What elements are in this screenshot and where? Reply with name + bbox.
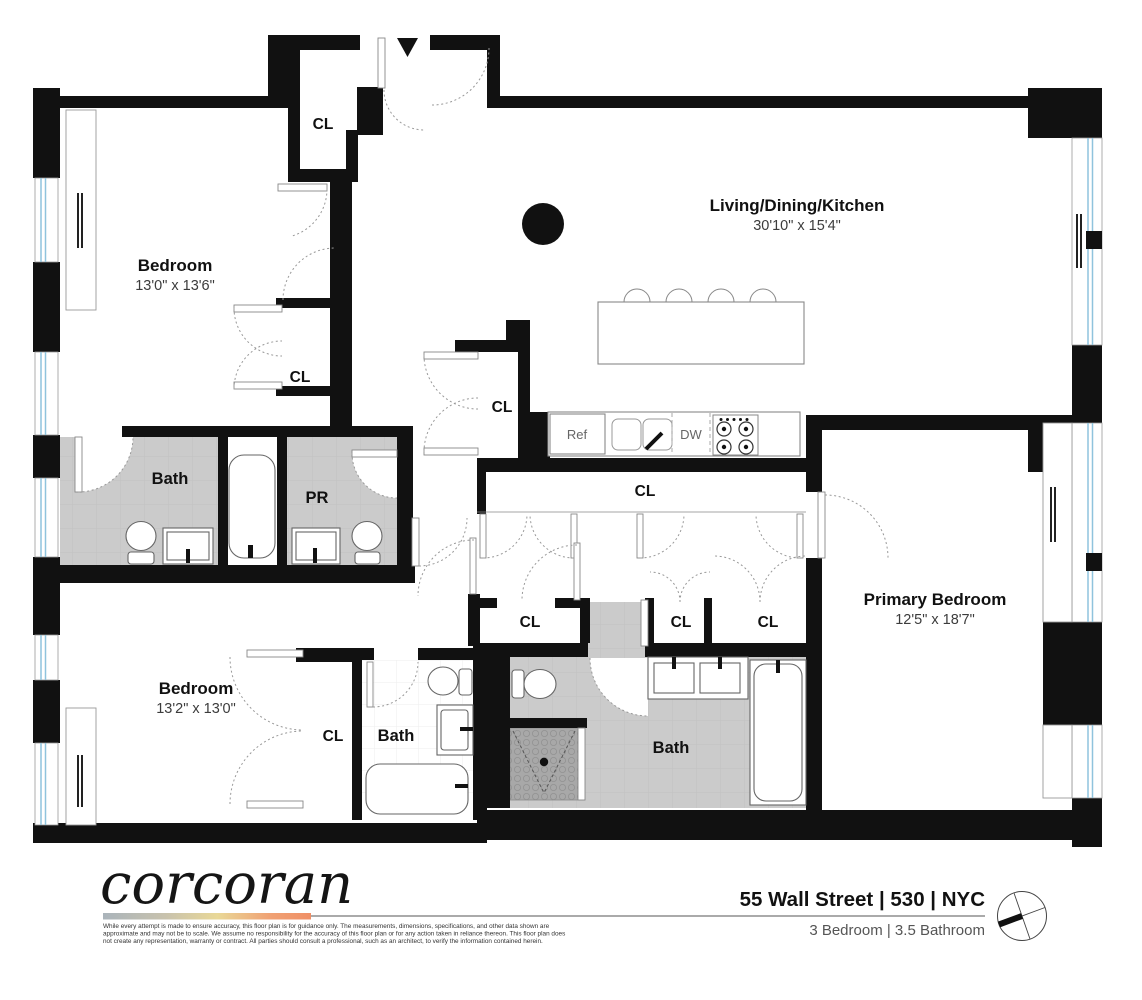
sink-icon [292, 528, 340, 564]
toilet-icon [126, 522, 156, 565]
toilet-icon [428, 667, 472, 695]
bathtub-icon [750, 660, 806, 805]
room-label-bedroom-2: Bedroom [159, 679, 234, 698]
toilet-icon [512, 670, 556, 699]
closet-label-kitchen: CL [492, 399, 513, 416]
closet-label-entry: CL [313, 116, 334, 133]
bath-label-primary: Bath [653, 739, 690, 757]
window-mullion [1086, 553, 1102, 571]
toilet-icon [352, 522, 382, 565]
room-dims-bedroom-1: 13'0" x 13'6" [135, 278, 215, 294]
compass-icon [998, 892, 1047, 941]
closet-label-bedroom-1: CL [290, 369, 311, 386]
bath-label-1: Bath [152, 470, 189, 488]
stove-icon [713, 415, 758, 455]
entry-arrow-icon [397, 38, 418, 57]
double-vanity-icon [648, 657, 748, 699]
dishwasher-label: DW [680, 427, 702, 442]
floor-plan-page: Bedroom 13'0" x 13'6" Living/Dining/Kitc… [0, 0, 1142, 1000]
sink-icon [163, 528, 213, 564]
column-icon [522, 203, 564, 245]
room-dims-bedroom-2: 13'2" x 13'0" [156, 701, 236, 717]
room-label-bedroom-1: Bedroom [138, 256, 213, 275]
room-dims-living: 30'10" x 15'4" [753, 218, 841, 234]
brand-gradient-bar [103, 913, 311, 920]
shower-drain-icon [540, 758, 548, 766]
refrigerator-label: Ref [567, 427, 588, 442]
footer: corcoran While every attempt is made to … [100, 852, 1047, 945]
powder-room-label: PR [306, 489, 329, 507]
bath-floors [60, 437, 806, 810]
closet-label-row-3: CL [758, 614, 779, 631]
bathtub-icon [366, 764, 468, 814]
address-title: 55 Wall Street | 530 | NYC [740, 888, 986, 911]
closet-label-hall: CL [635, 483, 656, 500]
kitchen-island [598, 289, 804, 364]
closet-label-row-2: CL [671, 614, 692, 631]
closet-label-row-1: CL [520, 614, 541, 631]
sink-icon [437, 705, 473, 755]
disclaimer-line-2: approximate and may not be to scale. We … [103, 931, 565, 938]
closet-label-bedroom-2: CL [323, 728, 344, 745]
bathtub-icon [229, 455, 275, 558]
room-dims-primary-bedroom: 12'5" x 18'7" [895, 612, 975, 628]
window-mullion [1086, 231, 1102, 249]
disclaimer-line-3: not create any representation, warranty … [103, 938, 543, 945]
unit-summary: 3 Bedroom | 3.5 Bathroom [809, 922, 985, 939]
floor-plan: Bedroom 13'0" x 13'6" Living/Dining/Kitc… [0, 0, 1142, 1000]
room-label-primary-bedroom: Primary Bedroom [864, 590, 1007, 609]
disclaimer-line-1: While every attempt is made to ensure ac… [103, 923, 550, 930]
bath-label-2: Bath [378, 727, 415, 745]
brand-logo: corcoran [100, 852, 353, 917]
room-label-living: Living/Dining/Kitchen [710, 196, 885, 215]
